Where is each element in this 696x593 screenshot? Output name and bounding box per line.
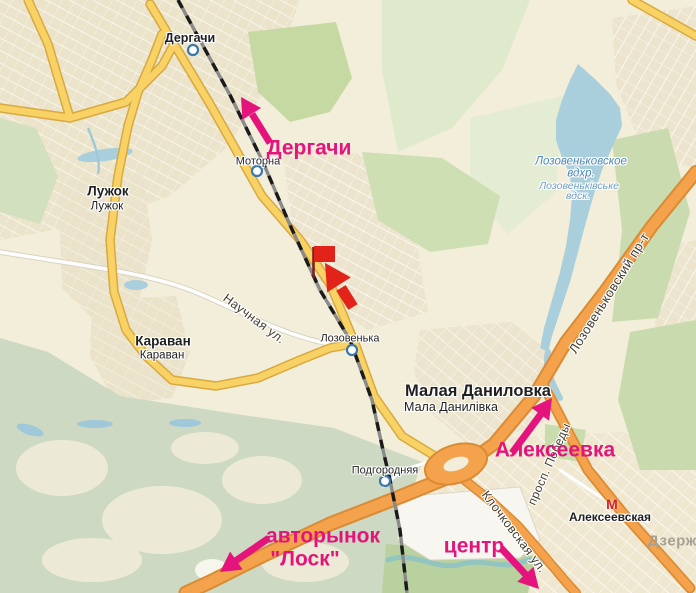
metro-label-alekseevskaya[interactable]: Алексеевская xyxy=(569,511,651,523)
district-label-dzerzh: Дзерж xyxy=(648,534,696,549)
town-label-luzhok-ua: Лужок xyxy=(91,201,124,213)
map-viewport[interactable]: Дергачи Лужок Лужок Караван Караван Мала… xyxy=(0,0,696,593)
station-dergachi xyxy=(188,45,198,55)
town-label-malaya-danilovka-ru: Малая Даниловка xyxy=(405,383,551,400)
annotation-label-centr: центр xyxy=(444,536,504,557)
town-label-malaya-danilovka-ua: Мала Данилівка xyxy=(404,401,498,414)
town-label-karavan-ru: Караван xyxy=(135,334,190,348)
annotation-label-alekseevka: Алексеевка xyxy=(495,440,615,461)
town-label-dergachi: Дергачи xyxy=(165,32,215,45)
station-label-lozovenka: Лозовенька xyxy=(320,334,379,345)
water-label-line4: вдск. xyxy=(566,191,590,202)
annotation-label-dergachi: Дергачи xyxy=(267,138,352,159)
town-label-karavan-ua: Караван xyxy=(140,350,185,362)
station-lozovenka xyxy=(347,345,357,355)
annotation-label-losk: "Лоск" xyxy=(270,549,339,570)
station-motorna xyxy=(252,166,262,176)
map-canvas[interactable] xyxy=(0,0,696,593)
station-label-podgorodnyaya: Подгородняя xyxy=(352,466,419,477)
metro-icon[interactable]: М xyxy=(606,497,618,511)
station-podgorodnyaya xyxy=(380,476,390,486)
annotation-label-avtorynok: авторынок xyxy=(266,526,380,547)
town-label-luzhok-ru: Лужок xyxy=(87,184,128,198)
water-label-line2: вдхр. xyxy=(567,168,594,180)
water-label-line1: Лозовеньковское xyxy=(535,156,627,168)
